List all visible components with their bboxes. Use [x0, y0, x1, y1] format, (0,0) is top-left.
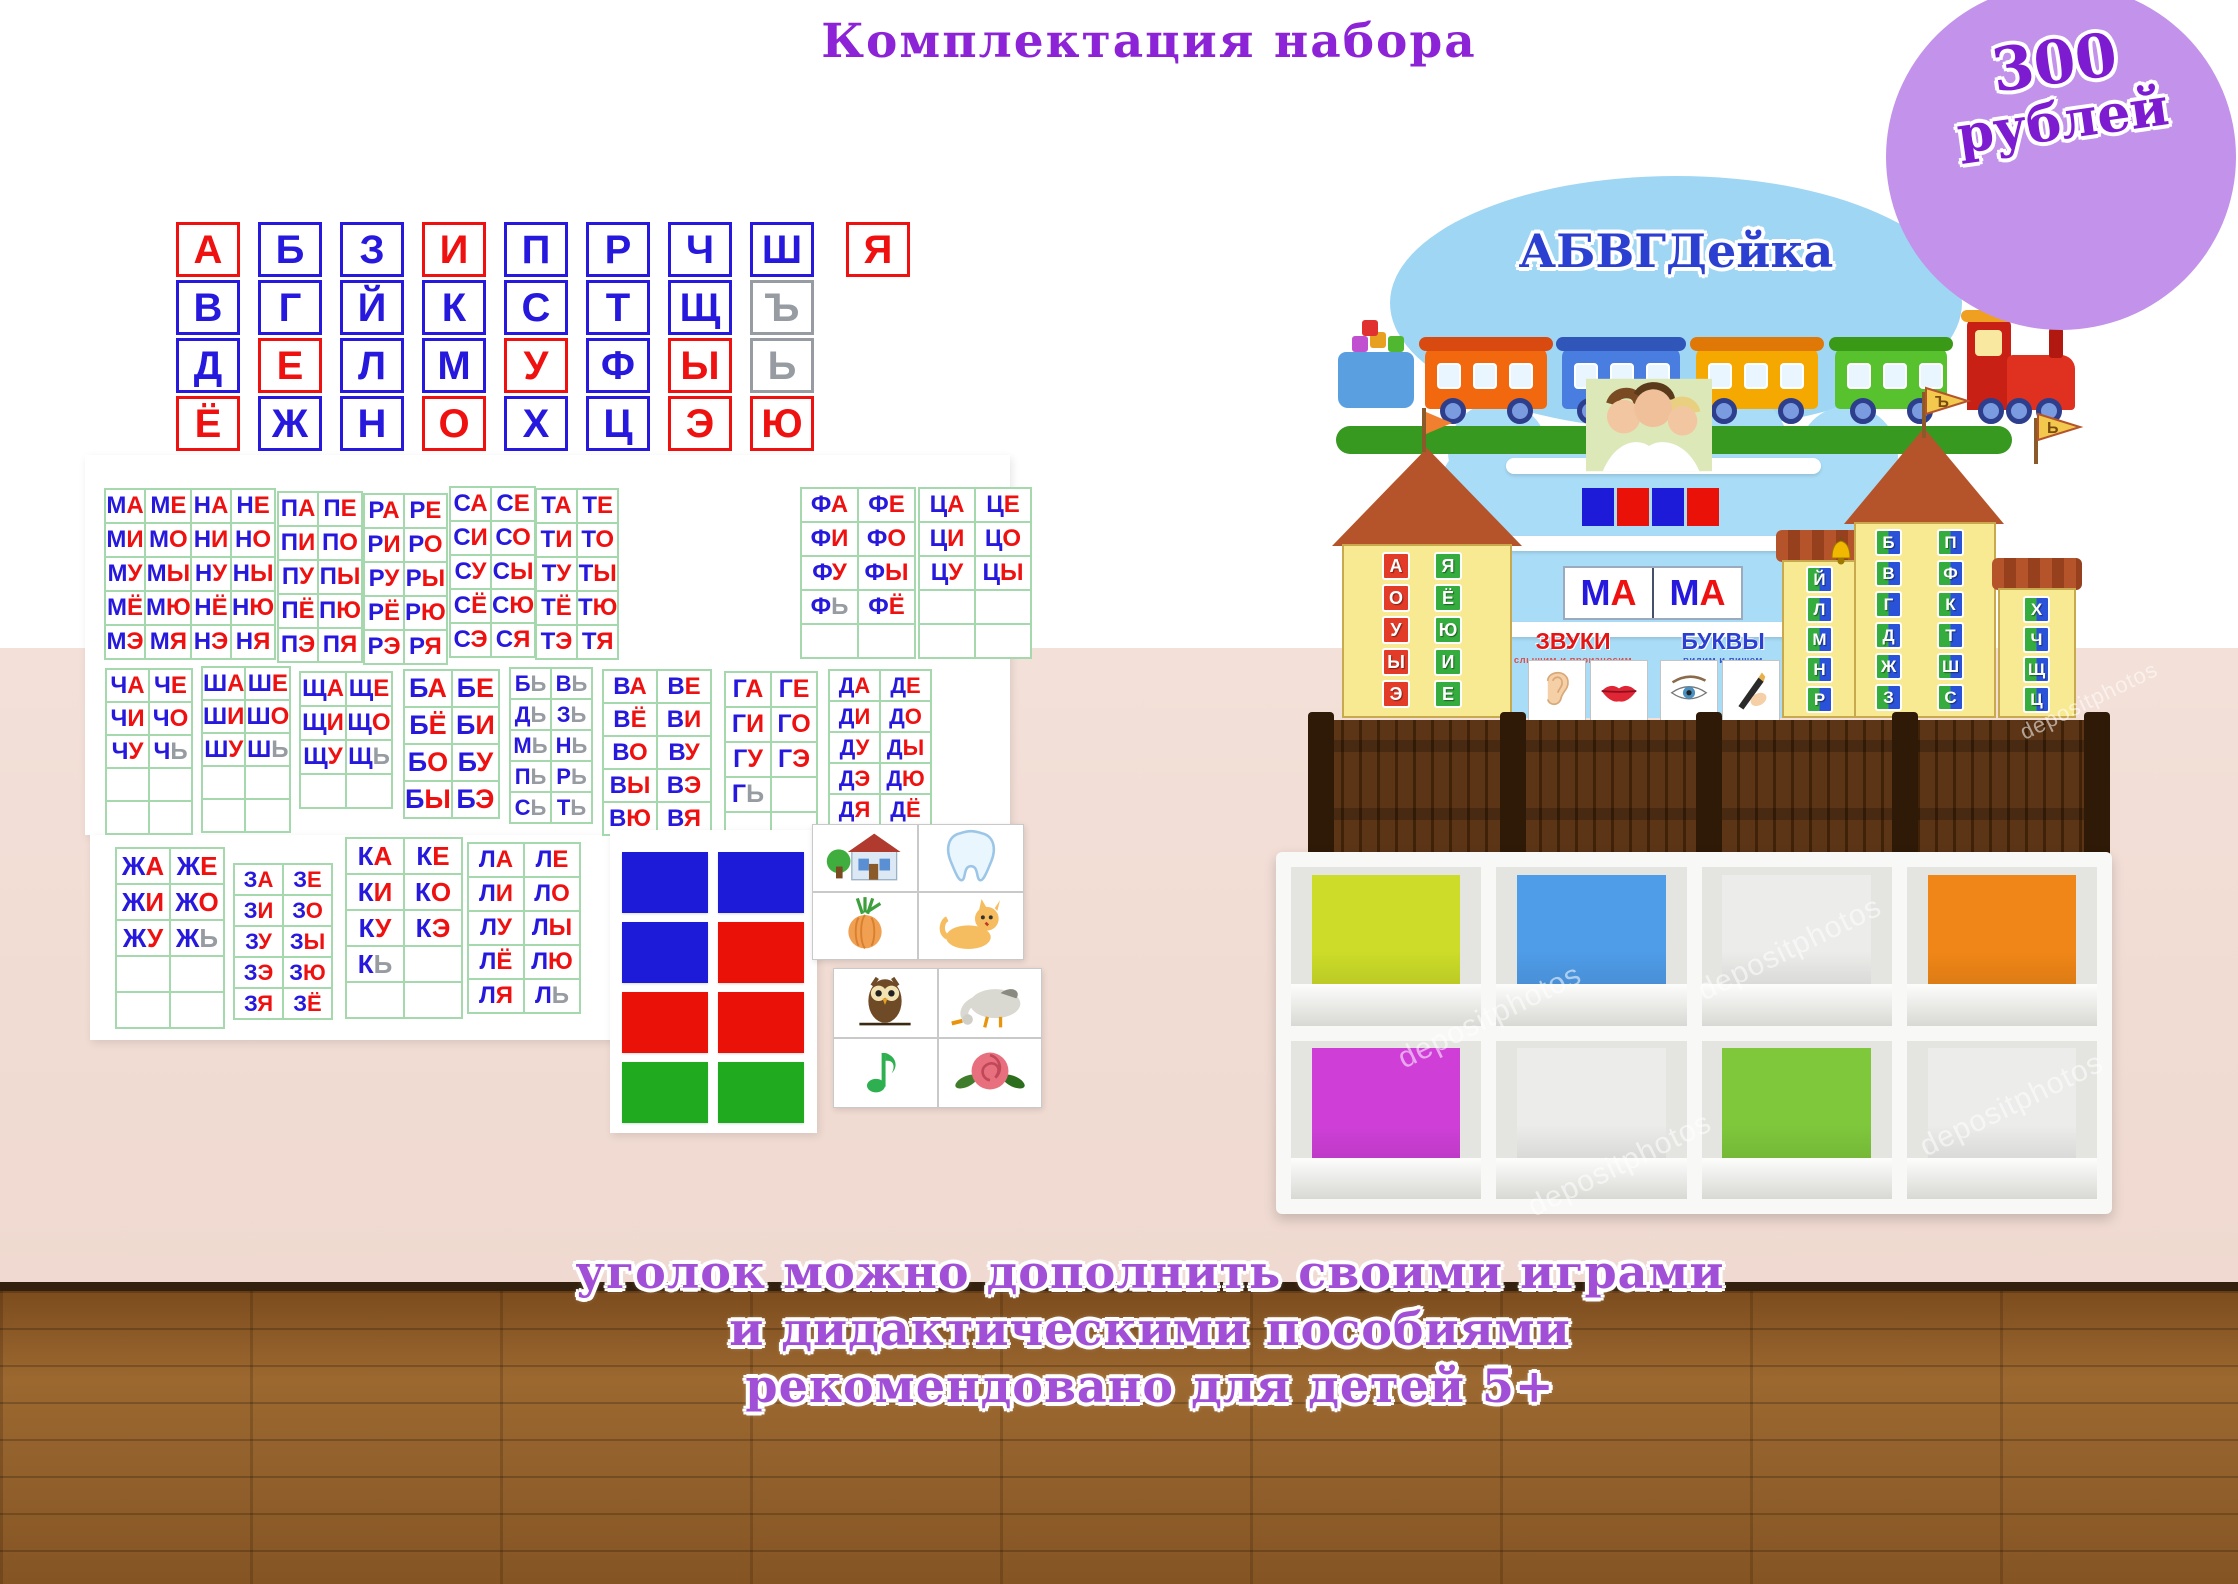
letter-card: Б: [258, 222, 322, 277]
cube-floor: [1702, 984, 1892, 1025]
color-square: [718, 852, 804, 913]
wooden-fence: [1308, 720, 2110, 856]
train-wheel: [1978, 398, 2004, 424]
cube-floor: [1496, 1158, 1686, 1199]
syllable-table-K: КАКЕКИКОКУКЭКЬ: [345, 837, 463, 1019]
fence-post: [2084, 712, 2110, 856]
letter-card: О: [422, 396, 486, 451]
train-wheel: [2006, 398, 2032, 424]
cubby-shelf: [1276, 852, 2112, 1214]
letter-card: В: [176, 280, 240, 335]
letter-card: Ы: [668, 338, 732, 393]
color-square: [622, 852, 708, 913]
letter-tile: Я: [1434, 552, 1462, 580]
letter-tile: О: [1382, 584, 1410, 612]
wagon-roof: [1829, 337, 1953, 351]
picture-card: [812, 824, 1024, 960]
picture-cell: [918, 892, 1024, 960]
loco-chimney: [2049, 328, 2063, 358]
house-icon: [819, 827, 911, 890]
wagon-window: [1473, 363, 1497, 389]
letter-tile: В: [1875, 560, 1902, 587]
syllable-table-ZH: ЖАЖЕЖИЖОЖУЖЬ: [115, 847, 225, 1029]
letter-card: Й: [340, 280, 404, 335]
letter-tile: У: [1382, 616, 1410, 644]
rose-icon: [944, 1042, 1036, 1105]
letter-tile: Ж: [1875, 653, 1902, 680]
letters-label: БУКВЫ: [1648, 628, 1798, 655]
wagon-window: [1847, 363, 1871, 389]
picture-cell: [938, 968, 1043, 1038]
cube-floor: [1702, 1158, 1892, 1199]
letter-tile: Т: [1937, 622, 1964, 649]
color-square: [718, 1062, 804, 1123]
wagon-window: [1509, 363, 1533, 389]
syllable-table-SOFT: БЬВЬДЬЗЬМЬНЬПЬРЬСЬТЬ: [509, 667, 593, 824]
letter-tile: Ю: [1434, 616, 1462, 644]
shelf-cube: [1907, 1041, 2097, 1200]
gift-box: [1352, 336, 1368, 352]
page-title: Комплектация набора: [269, 14, 2029, 69]
shelf-cube: [1907, 867, 2097, 1026]
letter-card: Х: [504, 396, 568, 451]
loco-window: [1975, 330, 2002, 356]
footer-line: и дидактическими пособиями: [130, 1301, 2170, 1358]
letter-card: Ц: [586, 396, 650, 451]
letter-card: И: [422, 222, 486, 277]
cube-floor: [1496, 984, 1686, 1025]
onion-icon: [824, 895, 906, 958]
letter-card: Ю: [750, 396, 814, 451]
writing-hand-icon: [1730, 665, 1772, 722]
cube-back-wall: [1517, 1048, 1665, 1157]
letter-tile: К: [1937, 591, 1964, 618]
cube-back-wall: [1722, 1048, 1870, 1157]
letter-card: С: [504, 280, 568, 335]
letter-tile: Ф: [1937, 560, 1964, 587]
letter-card: Щ: [668, 280, 732, 335]
train-wheel: [1507, 398, 1533, 424]
syllable-table-P: ПАПЕПИПОПУПЫПЁПЮПЭПЯ: [277, 491, 363, 663]
letter-tile: Д: [1875, 622, 1902, 649]
letter-tile: Е: [1434, 680, 1462, 708]
letter-tile: Э: [1382, 680, 1410, 708]
letter-card: Р: [586, 222, 650, 277]
syllable-table-C: ЦАЦЕЦИЦОЦУЦЫ: [918, 487, 1032, 659]
syllable-table-G: ГАГЕГИГОГУГЭГЬ: [724, 671, 818, 848]
letter-tile: Ы: [1382, 648, 1410, 676]
syllable-table-SCH: ЩАЩЕЩИЩОЩУЩЬ: [299, 671, 393, 809]
cube-floor: [1907, 1158, 2097, 1199]
footer-line: рекомендовано для детей 5+: [130, 1358, 2170, 1415]
syllable-table-T: ТАТЕТИТОТУТЫТЁТЮТЭТЯ: [535, 488, 619, 660]
syllable-table-R: РАРЕРИРОРУРЫРЁРЮРЭРЯ: [363, 493, 448, 665]
letter-tile: Л: [1806, 596, 1833, 623]
poster: Комплектация набора АБЗИПРЧШЯВГЙКСТЩЪДЕЛ…: [0, 0, 2238, 1584]
picture-card: [833, 968, 1042, 1108]
shelf-cube: [1702, 867, 1892, 1026]
svg-text:Ъ: Ъ: [1935, 394, 1949, 411]
train-wheel: [1778, 398, 1804, 424]
syllable-table-F: ФАФЕФИФОФУФЫФЬФЁ: [800, 487, 916, 659]
svg-text:Ь: Ь: [2047, 420, 2059, 437]
color-square: [622, 922, 708, 983]
bell-icon: [1828, 536, 1854, 568]
sound-square: [1617, 488, 1649, 526]
letter-card: Г: [258, 280, 322, 335]
shelf-cube: [1291, 1041, 1481, 1200]
letter-card: Ё: [176, 396, 240, 451]
sound-square: [1652, 488, 1684, 526]
train-wheel: [1850, 398, 1876, 424]
cube-back-wall: [1517, 875, 1665, 984]
cube-back-wall: [1722, 875, 1870, 984]
train-wagon: [1425, 347, 1547, 409]
picture-cell: [812, 892, 918, 960]
pennant: [1426, 412, 1452, 434]
sound-square: [1582, 488, 1614, 526]
letter-card: Ш: [750, 222, 814, 277]
cube-back-wall: [1312, 1048, 1460, 1157]
owl-icon: [844, 972, 926, 1035]
letter-card: Ф: [586, 338, 650, 393]
color-square: [718, 922, 804, 983]
color-square: [622, 992, 708, 1053]
letter-card: П: [504, 222, 568, 277]
syllable-table-L: ЛАЛЕЛИЛОЛУЛЫЛЁЛЮЛЯЛЬ: [467, 842, 581, 1014]
fence-post: [1696, 712, 1722, 856]
letter-tile: Й: [1806, 566, 1833, 593]
picture-cell: [833, 968, 938, 1038]
picture-cell: [918, 824, 1024, 892]
letter-card: Э: [668, 396, 732, 451]
letter-tile: Б: [1875, 529, 1902, 556]
shelf-cube: [1702, 1041, 1892, 1200]
wagon-window: [1437, 363, 1461, 389]
letter-card: Т: [586, 280, 650, 335]
house-body: [1342, 544, 1512, 718]
letter-card: А: [176, 222, 240, 277]
fence-post: [1500, 712, 1526, 856]
letter-tile: Р: [1806, 686, 1833, 713]
letter-tile: Ш: [1937, 653, 1964, 680]
letter-card: Д: [176, 338, 240, 393]
letter-card: Е: [258, 338, 322, 393]
house-roof: [1992, 558, 2082, 590]
music-note-icon: [849, 1043, 921, 1104]
train-wagon: [1696, 347, 1818, 409]
ear-icon: [1536, 665, 1578, 722]
syllable-table-CH: ЧАЧЕЧИЧОЧУЧЬ: [105, 668, 193, 835]
syllable-table-N: НАНЕНИНОНУНЫНЁНЮНЭНЯ: [190, 488, 276, 660]
cube-back-wall: [1928, 875, 2076, 984]
letter-tile: Х: [2023, 596, 2050, 623]
picture-cell: [938, 1038, 1043, 1108]
letter-card: Ъ: [750, 280, 814, 335]
letter-card: М: [422, 338, 486, 393]
goose-icon: [944, 972, 1036, 1035]
sounds-label: ЗВУКИ: [1498, 628, 1648, 655]
wagon-window: [1744, 363, 1768, 389]
fence-post: [1892, 712, 1918, 856]
letter-card: З: [340, 222, 404, 277]
family-photo: [1586, 376, 1712, 474]
letter-tile: С: [1937, 684, 1964, 711]
letter-card: Н: [340, 396, 404, 451]
letter-tile: Щ: [2023, 656, 2050, 683]
syllable-table-S: САСЕСИСОСУСЫСЁСЮСЭСЯ: [449, 486, 536, 658]
letter-tile: Ч: [2023, 626, 2050, 653]
color-square: [718, 992, 804, 1053]
letter-tile: Ц: [2023, 686, 2050, 713]
letter-card: Ь: [750, 338, 814, 393]
color-square: [622, 1062, 708, 1123]
letter-card: Ж: [258, 396, 322, 451]
color-squares-card: [610, 830, 817, 1133]
word-left: МА: [1565, 568, 1654, 618]
sound-square: [1687, 488, 1719, 526]
sense-card: [1722, 660, 1780, 726]
tooth-icon: [930, 828, 1012, 889]
sense-card: [1528, 660, 1586, 726]
cube-floor: [1907, 984, 2097, 1025]
syllable-table-Z: ЗАЗЕЗИЗОЗУЗЫЗЭЗЮЗЯЗЁ: [233, 863, 333, 1020]
price-badge: 300 рублей: [1886, 0, 2236, 330]
wagon-roof: [1419, 337, 1553, 351]
letter-tile: Ё: [1434, 584, 1462, 612]
picture-cell: [833, 1038, 938, 1108]
cube-floor: [1291, 984, 1481, 1025]
shelf-cube: [1291, 867, 1481, 1026]
cube-back-wall: [1928, 1048, 2076, 1157]
fence-post: [1308, 712, 1334, 856]
house-roof: [1844, 428, 2004, 524]
lips-icon: [1596, 665, 1642, 722]
shelf-cube: [1496, 1041, 1686, 1200]
letter-card: Л: [340, 338, 404, 393]
house-roof: [1332, 448, 1522, 546]
footer-line: уголок можно дополнить своими играми: [130, 1244, 2170, 1301]
sense-card: [1590, 660, 1648, 726]
syllable-table-V: ВАВЕВЁВИВОВУВЫВЭВЮВЯ: [602, 669, 712, 836]
letter-tile: П: [1937, 529, 1964, 556]
syllable-table-M: МАМЕМИМОМУМЫМЁМЮМЭМЯ: [104, 488, 193, 660]
letter-tile: З: [1875, 684, 1902, 711]
sign-flag: Ъ: [1918, 376, 1974, 440]
letter-card: Ч: [668, 222, 732, 277]
gift-cart: [1338, 352, 1414, 408]
board-title: АБВГДейка: [1390, 224, 1962, 278]
sign-flag: Ь: [2030, 402, 2086, 466]
word-right: МА: [1654, 568, 1741, 618]
wagon-window: [1883, 363, 1907, 389]
letter-tile: М: [1806, 626, 1833, 653]
letter-tile: Г: [1875, 591, 1902, 618]
board-shelf-bar: [1506, 536, 1821, 551]
shelf-cube: [1496, 867, 1686, 1026]
letter-tile: Н: [1806, 656, 1833, 683]
letter-card: К: [422, 280, 486, 335]
word-card: МА МА: [1563, 566, 1743, 620]
gift-box: [1388, 336, 1404, 352]
wagon-window: [1780, 363, 1804, 389]
letter-tile: И: [1434, 648, 1462, 676]
syllable-table-SH: ШАШЕШИШОШУШЬ: [201, 666, 291, 833]
wagon-roof: [1556, 337, 1686, 351]
syllable-table-B: БАБЕБЁБИБОБУБЫБЭ: [403, 669, 500, 819]
picture-cell: [812, 824, 918, 892]
gift-box: [1362, 320, 1378, 336]
cube-floor: [1291, 1158, 1481, 1199]
letter-tile: А: [1382, 552, 1410, 580]
letter-card: Я: [846, 222, 910, 277]
cube-back-wall: [1312, 875, 1460, 984]
footer-text: уголок можно дополнить своими играми и д…: [130, 1244, 2170, 1415]
letter-card: У: [504, 338, 568, 393]
syllable-table-D: ДАДЕДИДОДУДЫДЭДЮДЯДЁ: [828, 669, 932, 826]
wagon-roof: [1690, 337, 1824, 351]
train-wheel: [1711, 398, 1737, 424]
cat-icon: [925, 895, 1017, 958]
